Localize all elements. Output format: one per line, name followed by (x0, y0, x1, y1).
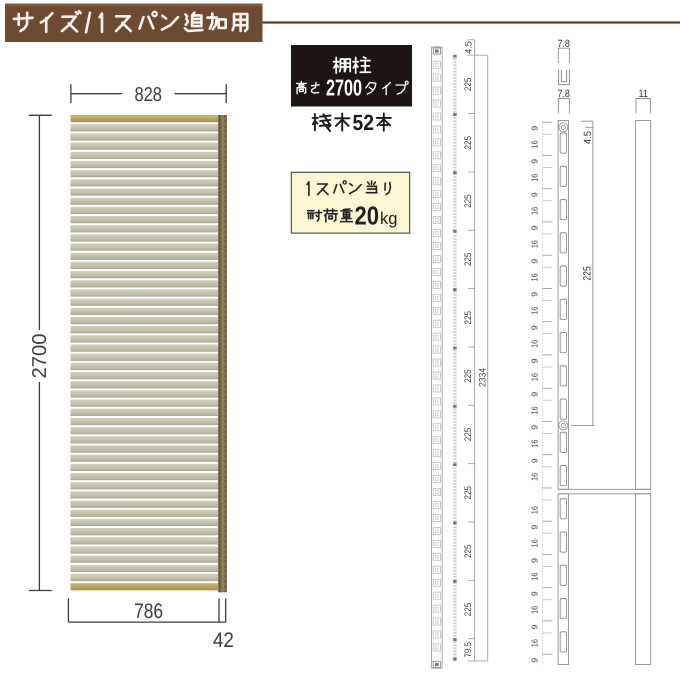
svg-text:16: 16 (529, 539, 539, 547)
svg-text:225: 225 (463, 253, 474, 267)
svg-text:16: 16 (529, 273, 539, 281)
svg-text:9: 9 (529, 658, 539, 663)
svg-text:225: 225 (463, 136, 474, 150)
svg-text:11: 11 (638, 88, 648, 100)
svg-text:79.5: 79.5 (463, 642, 474, 658)
svg-text:9: 9 (529, 558, 539, 563)
svg-text:16: 16 (529, 240, 539, 248)
svg-text:225: 225 (463, 369, 474, 383)
svg-text:225: 225 (463, 603, 474, 617)
svg-text:9: 9 (529, 192, 539, 197)
svg-text:52: 52 (353, 110, 375, 135)
svg-text:9: 9 (529, 392, 539, 397)
svg-text:16: 16 (529, 572, 539, 580)
svg-text:16: 16 (529, 439, 539, 447)
svg-text:2700: 2700 (29, 334, 51, 379)
svg-text:786: 786 (134, 600, 163, 623)
svg-text:16: 16 (529, 173, 539, 181)
svg-text:16: 16 (529, 473, 539, 481)
svg-text:42: 42 (213, 629, 234, 652)
svg-text:9: 9 (529, 358, 539, 363)
svg-text:9: 9 (529, 159, 539, 164)
svg-text:16: 16 (529, 506, 539, 514)
svg-text:225: 225 (582, 266, 594, 281)
svg-text:9: 9 (529, 126, 539, 131)
svg-text:2700: 2700 (326, 75, 362, 101)
svg-text:9: 9 (529, 259, 539, 264)
svg-text:16: 16 (529, 639, 539, 647)
svg-text:16: 16 (529, 373, 539, 381)
svg-text:16: 16 (529, 306, 539, 314)
svg-text:4.5: 4.5 (464, 41, 475, 54)
svg-text:225: 225 (463, 428, 474, 442)
svg-text:7.8: 7.8 (557, 88, 570, 100)
svg-text:9: 9 (529, 425, 539, 430)
svg-text:225: 225 (463, 486, 474, 500)
svg-text:4.5: 4.5 (582, 131, 594, 144)
svg-text:16: 16 (529, 207, 539, 215)
svg-text:225: 225 (463, 311, 474, 325)
svg-text:9: 9 (529, 325, 539, 330)
svg-text:16: 16 (529, 606, 539, 614)
svg-text:225: 225 (463, 194, 474, 208)
svg-text:828: 828 (134, 84, 162, 106)
svg-text:16: 16 (529, 406, 539, 414)
svg-text:9: 9 (529, 591, 539, 596)
svg-text:kg: kg (380, 209, 398, 228)
svg-text:16: 16 (529, 340, 539, 348)
svg-text:9: 9 (529, 624, 539, 629)
svg-text:16: 16 (529, 140, 539, 148)
svg-text:9: 9 (529, 225, 539, 230)
svg-text:225: 225 (463, 78, 474, 92)
svg-text:9: 9 (529, 525, 539, 530)
svg-text:9: 9 (529, 458, 539, 463)
svg-text:225: 225 (463, 544, 474, 558)
svg-text:9: 9 (529, 292, 539, 297)
svg-text:20: 20 (355, 201, 380, 231)
svg-text:2334: 2334 (478, 368, 489, 387)
